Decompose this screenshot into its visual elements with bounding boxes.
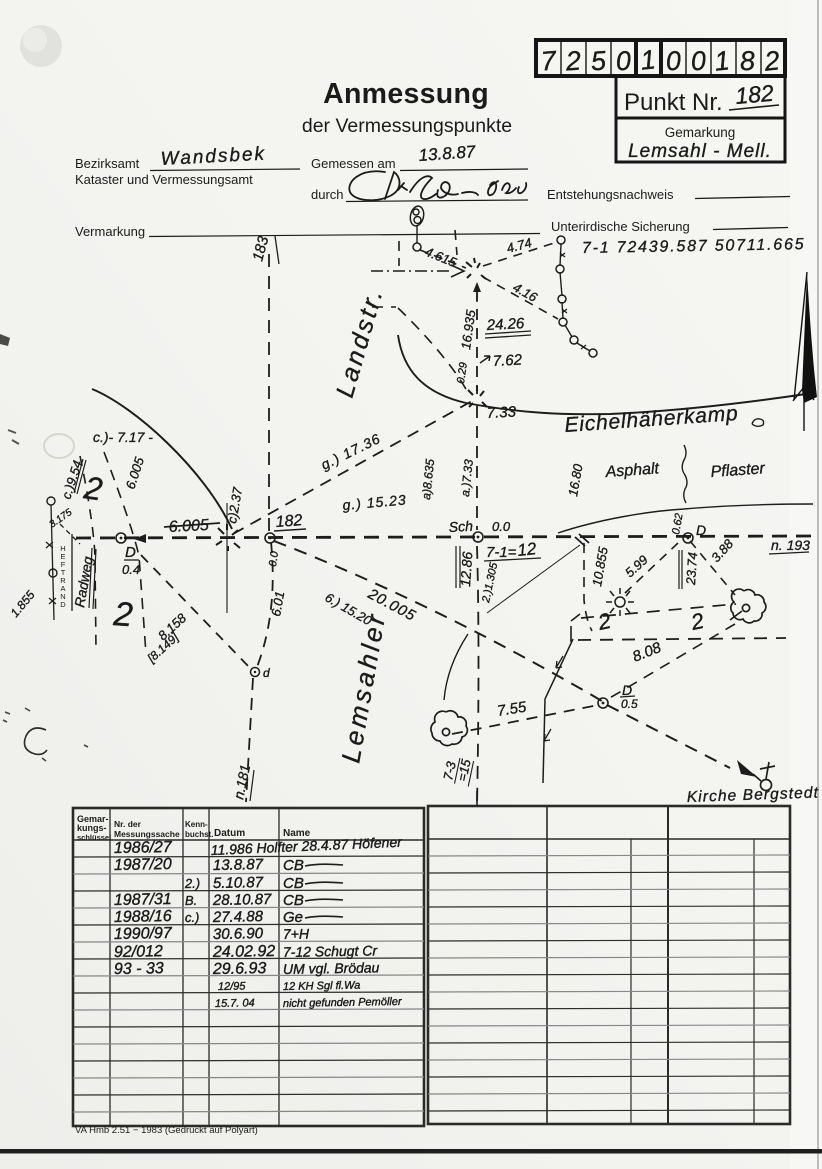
svg-text:2: 2 xyxy=(762,45,781,77)
svg-text:0.0: 0.0 xyxy=(267,550,281,568)
svg-text:2: 2 xyxy=(111,595,134,634)
svg-text:1988/16: 1988/16 xyxy=(114,908,172,926)
svg-text:23.74: 23.74 xyxy=(683,552,700,587)
svg-text:Gemarkung: Gemarkung xyxy=(665,125,736,140)
svg-text:2: 2 xyxy=(564,46,582,77)
svg-text:7.33: 7.33 xyxy=(486,403,517,422)
svg-text:UM vgl. Brödau: UM vgl. Brödau xyxy=(283,959,380,977)
svg-text:Kenn-: Kenn- xyxy=(185,820,208,829)
svg-text:13.8.87: 13.8.87 xyxy=(213,856,264,874)
svg-text:92/012: 92/012 xyxy=(114,943,163,961)
svg-text:nicht gefunden Pemöller: nicht gefunden Pemöller xyxy=(283,996,403,1010)
svg-text:Sch: Sch xyxy=(448,518,473,535)
svg-text:buchst.: buchst. xyxy=(185,830,213,839)
svg-text:28.10.87: 28.10.87 xyxy=(212,891,272,909)
svg-text:Nr. der: Nr. der xyxy=(114,819,142,829)
svg-text:5.10.87: 5.10.87 xyxy=(213,874,264,892)
svg-text:d: d xyxy=(263,666,270,680)
svg-text:0.5: 0.5 xyxy=(621,697,638,711)
svg-text:30.6.90: 30.6.90 xyxy=(213,925,264,943)
svg-text:der Vermessungspunkte: der Vermessungspunkte xyxy=(302,115,512,137)
svg-text:n. 193: n. 193 xyxy=(771,537,810,553)
svg-text:182: 182 xyxy=(734,80,775,109)
svg-text:93 - 33: 93 - 33 xyxy=(114,960,164,978)
svg-text:kungs-: kungs- xyxy=(77,823,107,833)
svg-text:12 KH Sgl fl.Wa: 12 KH Sgl fl.Wa xyxy=(283,980,361,993)
svg-text:12: 12 xyxy=(516,539,537,560)
svg-text:12/95: 12/95 xyxy=(218,981,247,993)
svg-text:B.: B. xyxy=(185,893,198,908)
svg-text:0: 0 xyxy=(690,46,707,77)
svg-text:1: 1 xyxy=(639,44,657,75)
svg-text:c.)- 7.17 -: c.)- 7.17 - xyxy=(93,429,153,445)
svg-text:1987/31: 1987/31 xyxy=(114,891,172,909)
svg-text:15.7. 04: 15.7. 04 xyxy=(215,997,255,1010)
svg-text:CB: CB xyxy=(283,892,304,909)
svg-text:7-12 Schugt Cr: 7-12 Schugt Cr xyxy=(283,942,379,960)
svg-text:29.6.93: 29.6.93 xyxy=(212,960,267,978)
svg-text:13.8.87: 13.8.87 xyxy=(418,142,476,165)
svg-text:Entstehungsnachweis: Entstehungsnachweis xyxy=(547,187,674,202)
svg-text:Ge: Ge xyxy=(283,909,303,926)
svg-text:VA Hmb 2.51 − 1983 (Gedruckt a: VA Hmb 2.51 − 1983 (Gedruckt auf Polyart… xyxy=(75,1125,258,1136)
svg-text:0: 0 xyxy=(665,46,682,77)
svg-text:Unterirdische Sicherung: Unterirdische Sicherung xyxy=(551,219,690,234)
svg-text:D: D xyxy=(125,544,136,561)
svg-text:CB: CB xyxy=(283,875,304,892)
svg-text:1: 1 xyxy=(713,45,731,76)
svg-text:27.4.88: 27.4.88 xyxy=(212,908,264,926)
svg-text:D: D xyxy=(696,522,706,538)
svg-text:Lemsahl - Mell.: Lemsahl - Mell. xyxy=(628,141,772,162)
svg-text:CB: CB xyxy=(283,857,304,874)
svg-text:D: D xyxy=(622,682,632,698)
svg-text:0: 0 xyxy=(615,46,632,77)
svg-text:7.62: 7.62 xyxy=(492,351,523,370)
svg-text:Gemessen am: Gemessen am xyxy=(311,156,396,171)
svg-text:7-1=: 7-1= xyxy=(486,544,517,561)
svg-text:7+H: 7+H xyxy=(283,926,310,942)
svg-text:Punkt Nr.: Punkt Nr. xyxy=(624,89,723,116)
svg-text:Messungssache: Messungssache xyxy=(114,829,180,839)
svg-text:8: 8 xyxy=(739,46,756,77)
svg-text:182: 182 xyxy=(275,512,303,531)
svg-text:durch: durch xyxy=(311,187,344,202)
svg-text:Vermarkung: Vermarkung xyxy=(75,224,145,239)
svg-text:0.0: 0.0 xyxy=(492,519,511,534)
svg-text:schlüssel: schlüssel xyxy=(77,833,111,842)
svg-text:c.): c.) xyxy=(185,910,200,925)
svg-text:2.): 2.) xyxy=(184,876,200,891)
svg-text:1990/97: 1990/97 xyxy=(114,925,173,943)
svg-text:Anmessung: Anmessung xyxy=(323,78,489,110)
svg-text:Kataster und Vermessungsamt: Kataster und Vermessungsamt xyxy=(75,172,253,187)
svg-text:24.02.92: 24.02.92 xyxy=(212,943,276,961)
svg-text:0.4: 0.4 xyxy=(122,562,140,577)
svg-text:D: D xyxy=(60,600,66,609)
svg-text:Datum: Datum xyxy=(214,828,245,839)
svg-text:1987/20: 1987/20 xyxy=(114,856,172,874)
svg-text:1986/27: 1986/27 xyxy=(114,839,173,857)
svg-text:Bezirksamt: Bezirksamt xyxy=(75,156,140,171)
